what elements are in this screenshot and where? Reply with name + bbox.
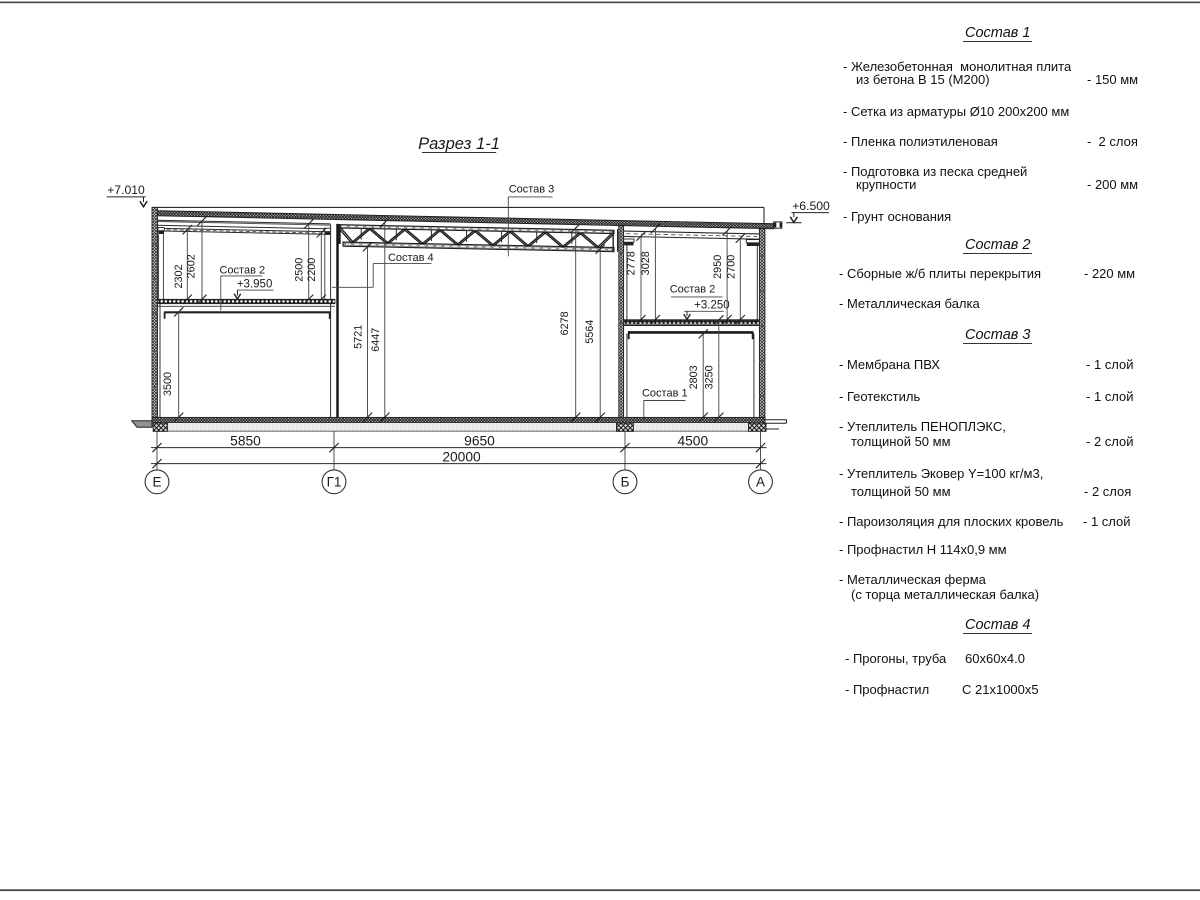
- svg-text:2778: 2778: [626, 251, 638, 275]
- svg-text:2602: 2602: [186, 254, 198, 278]
- svg-text:2700: 2700: [726, 255, 738, 279]
- svg-text:Е: Е: [152, 475, 161, 490]
- svg-text:Состав 4: Состав 4: [388, 252, 434, 264]
- svg-text:2950: 2950: [712, 255, 724, 279]
- svg-text:20000: 20000: [442, 449, 481, 464]
- svg-text:5721: 5721: [352, 325, 364, 349]
- svg-text:Состав 2: Состав 2: [670, 284, 716, 296]
- svg-text:Состав 2: Состав 2: [219, 264, 265, 276]
- svg-text:2500: 2500: [293, 258, 305, 282]
- svg-text:2200: 2200: [306, 258, 318, 282]
- svg-text:3028: 3028: [640, 251, 652, 275]
- svg-text:+7.010: +7.010: [107, 183, 145, 197]
- svg-text:2302: 2302: [173, 264, 185, 288]
- svg-text:6447: 6447: [370, 328, 382, 352]
- svg-text:3500: 3500: [162, 372, 174, 396]
- svg-text:Состав 1: Состав 1: [642, 388, 688, 400]
- svg-text:2803: 2803: [688, 365, 700, 389]
- svg-text:+3.950: +3.950: [237, 279, 273, 291]
- svg-text:3250: 3250: [703, 365, 715, 389]
- svg-text:5564: 5564: [584, 320, 596, 344]
- svg-text:6278: 6278: [559, 311, 571, 335]
- svg-text:5850: 5850: [230, 433, 261, 448]
- svg-text:4500: 4500: [677, 433, 708, 448]
- svg-text:9650: 9650: [464, 433, 495, 448]
- svg-text:А: А: [756, 475, 765, 490]
- svg-text:Б: Б: [621, 475, 630, 490]
- svg-text:Г1: Г1: [327, 475, 342, 490]
- svg-text:Разрез 1-1: Разрез 1-1: [418, 135, 500, 153]
- svg-text:+6.500: +6.500: [792, 199, 830, 213]
- svg-text:+3.250: +3.250: [694, 299, 730, 311]
- svg-text:Состав 3: Состав 3: [509, 184, 555, 196]
